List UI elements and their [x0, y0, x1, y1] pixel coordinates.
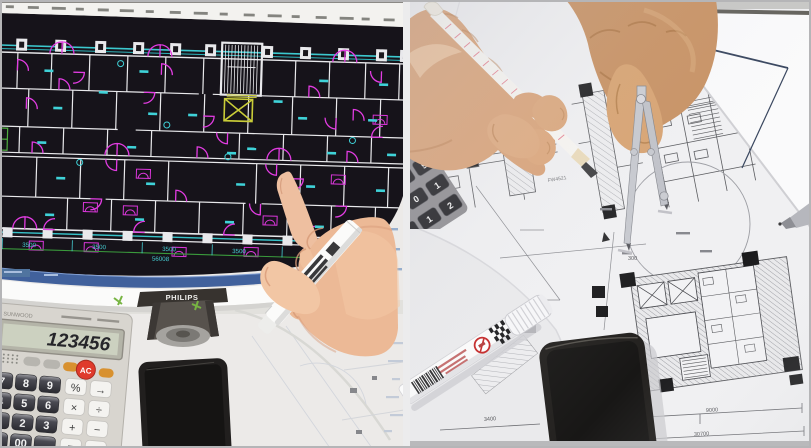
svg-text:2: 2	[19, 418, 26, 430]
svg-text:3500: 3500	[162, 246, 177, 253]
svg-text:−: −	[93, 424, 100, 437]
svg-text:PHILIPS: PHILIPS	[166, 293, 199, 302]
svg-text:+: +	[68, 422, 75, 435]
svg-text:→: →	[95, 384, 107, 397]
svg-text:3500: 3500	[92, 244, 107, 251]
svg-text:5: 5	[21, 398, 28, 410]
svg-text:56008: 56008	[152, 256, 170, 264]
svg-text:6: 6	[44, 400, 51, 412]
svg-text:8: 8	[22, 378, 29, 390]
svg-text:9: 9	[46, 380, 53, 392]
svg-text:×: ×	[70, 402, 77, 415]
svg-text:3500: 3500	[232, 248, 247, 255]
svg-text:÷: ÷	[95, 404, 102, 416]
svg-text:3500: 3500	[22, 242, 37, 249]
svg-text:3: 3	[43, 420, 50, 432]
svg-text:AC: AC	[80, 366, 93, 376]
svg-text:%: %	[70, 382, 81, 395]
